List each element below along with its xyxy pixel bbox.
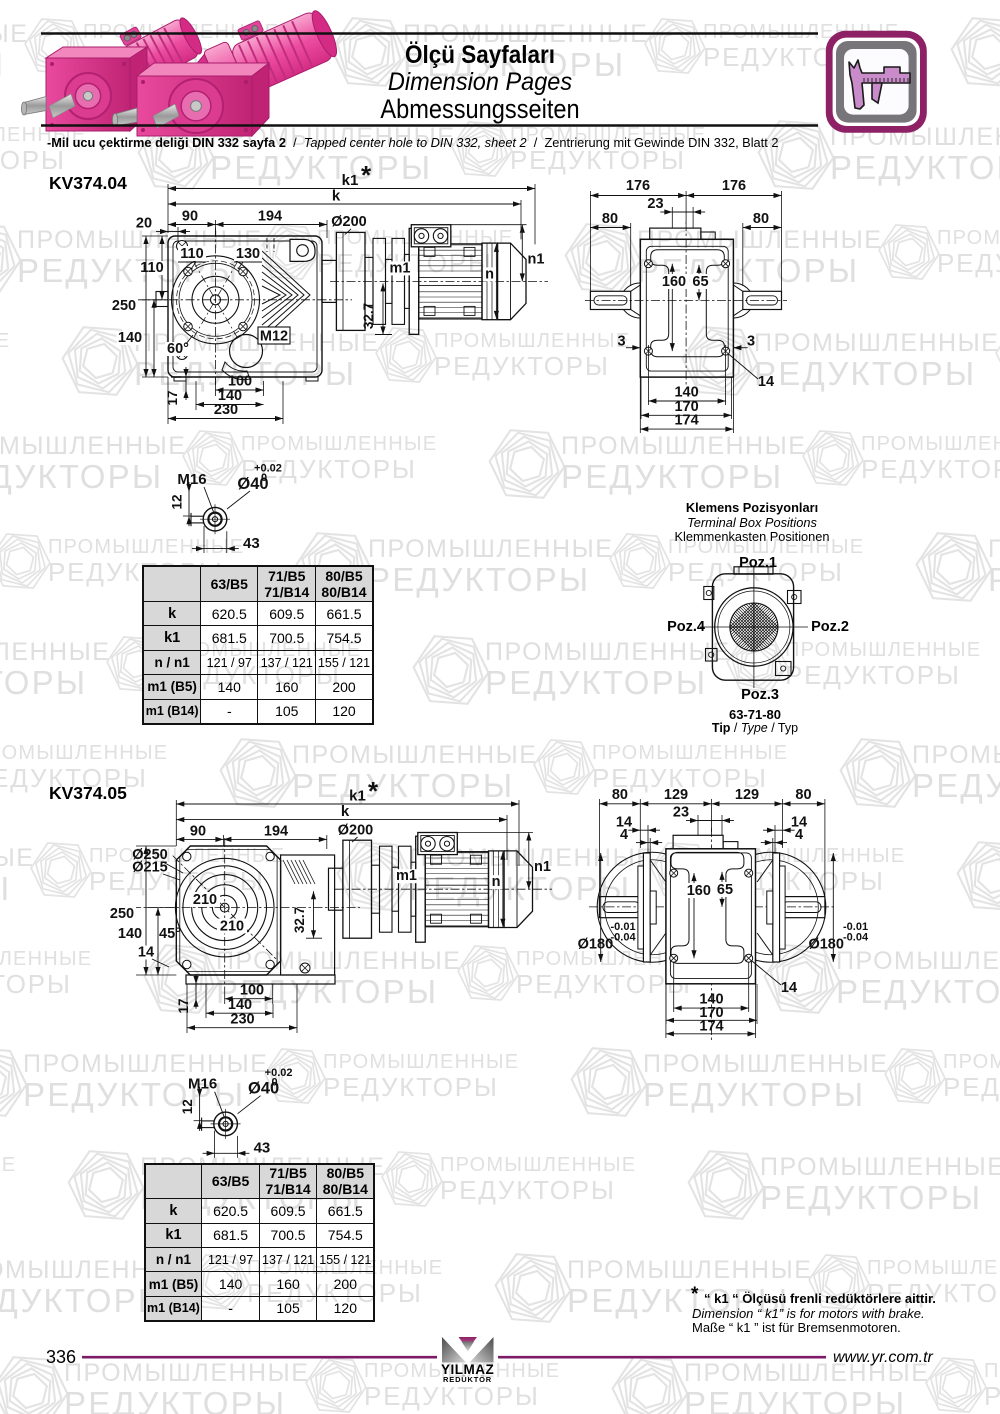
svg-text:+0.02: +0.02	[254, 463, 282, 475]
svg-text:65: 65	[692, 274, 708, 290]
svg-text:3: 3	[747, 334, 755, 350]
svg-text:174: 174	[674, 413, 698, 429]
svg-text:0: 0	[261, 472, 267, 484]
svg-text:n: n	[492, 874, 501, 890]
svg-text:140: 140	[118, 330, 142, 346]
svg-text:3: 3	[617, 334, 625, 350]
svg-text:k1: k1	[342, 172, 359, 189]
svg-text:194: 194	[264, 824, 288, 840]
svg-text:Ø215: Ø215	[132, 860, 167, 876]
svg-text:90: 90	[182, 209, 198, 225]
svg-text:Ø200: Ø200	[338, 823, 373, 839]
svg-text:130: 130	[236, 246, 260, 262]
svg-text:80: 80	[795, 787, 811, 803]
svg-text:20: 20	[136, 216, 152, 232]
svg-text:Ø200: Ø200	[331, 214, 366, 230]
svg-text:23: 23	[673, 805, 689, 821]
svg-text:90: 90	[190, 824, 206, 840]
svg-text:0: 0	[272, 1077, 278, 1089]
svg-text:210: 210	[220, 919, 244, 935]
svg-text:M12: M12	[260, 329, 288, 345]
svg-text:110: 110	[140, 260, 163, 276]
svg-text:23: 23	[647, 196, 663, 212]
svg-text:174: 174	[699, 1018, 723, 1034]
svg-text:m1: m1	[390, 260, 411, 276]
svg-text:14: 14	[138, 945, 154, 961]
svg-text:80: 80	[753, 211, 769, 227]
svg-text:4: 4	[795, 827, 803, 843]
svg-text:Ø180: Ø180	[578, 936, 613, 952]
svg-text:4: 4	[620, 827, 628, 843]
svg-text:M16: M16	[177, 471, 206, 488]
svg-text:12: 12	[170, 494, 185, 509]
svg-text:14: 14	[758, 374, 774, 390]
svg-text:176: 176	[722, 178, 746, 194]
svg-text:230: 230	[230, 1012, 254, 1028]
svg-text:k: k	[341, 803, 350, 820]
svg-text:+0.02: +0.02	[265, 1067, 293, 1079]
svg-text:n: n	[485, 266, 494, 282]
svg-text:32.7: 32.7	[361, 303, 376, 329]
svg-text:*: *	[361, 160, 372, 190]
svg-text:12: 12	[180, 1099, 195, 1114]
svg-text:*: *	[368, 776, 379, 806]
svg-text:45°: 45°	[159, 926, 181, 942]
svg-text:n1: n1	[528, 251, 545, 267]
svg-text:230: 230	[214, 402, 238, 418]
svg-text:194: 194	[258, 209, 282, 225]
svg-text:160: 160	[687, 883, 711, 899]
svg-text:Ø180: Ø180	[808, 936, 843, 952]
svg-text:-0.04: -0.04	[611, 932, 637, 944]
svg-text:80: 80	[612, 787, 628, 803]
svg-text:43: 43	[254, 1140, 271, 1157]
svg-text:250: 250	[110, 906, 134, 922]
svg-text:14: 14	[781, 980, 797, 996]
svg-text:160: 160	[662, 274, 686, 290]
svg-text:210: 210	[193, 892, 217, 908]
svg-text:m1: m1	[396, 868, 417, 884]
svg-text:129: 129	[735, 787, 759, 803]
svg-text:k1: k1	[349, 788, 366, 805]
svg-text:M16: M16	[188, 1076, 217, 1093]
svg-text:65: 65	[717, 882, 733, 898]
svg-text:-0.04: -0.04	[843, 932, 869, 944]
svg-text:140: 140	[118, 926, 142, 942]
svg-text:17: 17	[165, 390, 180, 405]
svg-text:n1: n1	[534, 859, 551, 875]
svg-text:17: 17	[176, 998, 191, 1013]
svg-text:250: 250	[112, 298, 136, 314]
svg-text:k: k	[332, 188, 341, 205]
svg-text:60°: 60°	[167, 341, 189, 357]
svg-text:32.7: 32.7	[292, 907, 307, 933]
svg-text:43: 43	[243, 535, 260, 552]
svg-text:129: 129	[664, 787, 688, 803]
svg-text:110: 110	[180, 246, 203, 262]
svg-text:80: 80	[602, 211, 618, 227]
svg-text:176: 176	[626, 178, 650, 194]
